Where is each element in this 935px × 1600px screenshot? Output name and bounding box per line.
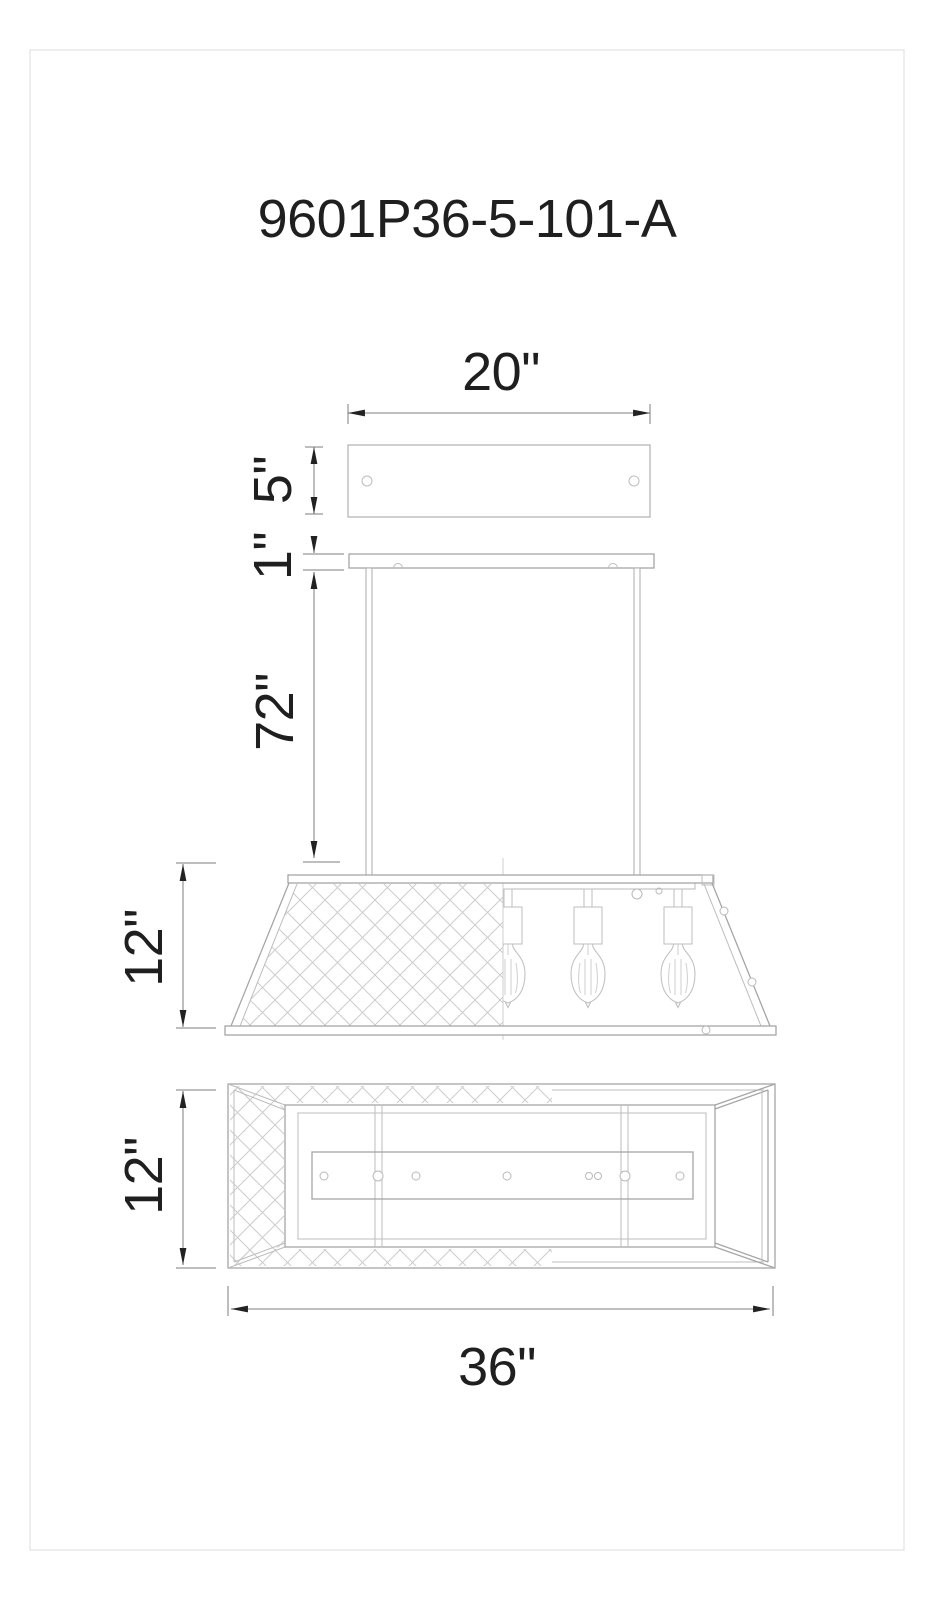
slant-rivet-upper [720, 907, 728, 915]
bar-hole [595, 1173, 602, 1180]
mesh-panel-left [230, 1086, 284, 1266]
dim-ext-canopy-thickness [303, 554, 344, 570]
slant-rivet-lower [748, 978, 756, 986]
dim-ext-canopy-width [348, 404, 650, 424]
canopy-profile [349, 554, 654, 568]
dim-label-fixture-length: 36" [458, 1337, 536, 1397]
page-title: 9601P36-5-101-A [258, 189, 677, 249]
mesh-band-bottom [234, 1249, 552, 1266]
hanger-rod-right [634, 568, 640, 890]
bar-hole [503, 1172, 511, 1180]
dim-label-canopy-depth: 5" [243, 456, 303, 504]
dim-label-body-height: 12" [114, 1137, 174, 1215]
shade-top-rim [288, 875, 713, 883]
rod-mount-hole-left [373, 1171, 383, 1181]
shade-right-slant-inner [704, 884, 761, 1026]
mesh-band-top [234, 1086, 552, 1103]
edison-bulb-right [661, 889, 695, 1008]
bar-hole [676, 1172, 684, 1180]
fixture-dimension-diagram: 9601P36-5-101-A [0, 0, 935, 1600]
canopy-plate [348, 445, 650, 517]
shade-right-slant-outer [712, 883, 770, 1026]
fixture-bottom-view [228, 1084, 775, 1268]
fixture-side-view [225, 858, 776, 1040]
dim-ext-body-height [176, 1090, 216, 1268]
edison-bulb-mid [571, 889, 605, 1008]
dim-label-shade-height: 12" [114, 909, 174, 987]
shade-bottom-rim [225, 1026, 776, 1035]
bottom-rim-rivet [702, 1026, 710, 1034]
canopy-side-view [349, 554, 654, 890]
support-bar [503, 883, 695, 889]
canopy-top-view [348, 445, 650, 517]
dim-label-canopy-width: 20" [462, 342, 540, 402]
bar-hole [412, 1172, 420, 1180]
dim-label-canopy-thickness: 1" [243, 532, 303, 580]
rod-mount-hole-right [620, 1171, 630, 1181]
page-border [30, 50, 904, 1550]
bar-hole [586, 1173, 593, 1180]
dim-label-rod-drop: 72" [245, 673, 305, 751]
dim-ext-shade-height [176, 863, 216, 1028]
drawing-sheet: 9601P36-5-101-A [0, 0, 935, 1600]
dim-ext-fixture-length [228, 1286, 773, 1316]
hanger-rod-left [366, 568, 372, 875]
bar-hole [320, 1172, 328, 1180]
rod-loop [632, 889, 642, 899]
